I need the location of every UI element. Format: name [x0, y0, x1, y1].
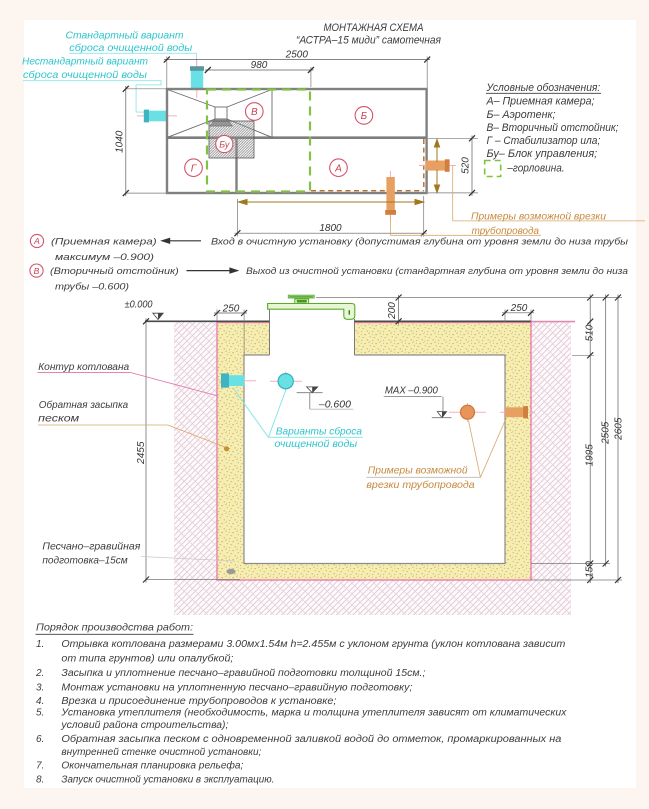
svg-text:от типа грунтов) или опалубкой: от типа грунтов) или опалубкой;: [61, 653, 233, 665]
svg-text:2455: 2455: [136, 441, 147, 465]
svg-text:трубы –0.600): трубы –0.600): [55, 282, 129, 293]
svg-text:510: 510: [585, 324, 596, 341]
svg-text:врезки трубопровода: врезки трубопровода: [366, 479, 474, 491]
svg-text:“АСТРА–15 миди” самотечная: “АСТРА–15 миди” самотечная: [296, 35, 441, 47]
svg-text:5.: 5.: [36, 708, 44, 719]
svg-text:3.: 3.: [36, 683, 44, 694]
svg-text:Бу– Блок управления;: Бу– Блок управления;: [487, 148, 598, 160]
svg-text:Б– Аэротенк;: Б– Аэротенк;: [487, 109, 556, 121]
svg-text:±0.000: ±0.000: [125, 300, 153, 311]
svg-text:–0.600: –0.600: [318, 399, 351, 410]
svg-text:Обратная засыпка песком с одно: Обратная засыпка песком с одновременной …: [61, 733, 561, 745]
svg-text:Обратная засыпка: Обратная засыпка: [39, 399, 129, 411]
svg-text:Отрывка котлована размерами 3: Отрывка котлована размерами 3.00мх1.54м …: [61, 639, 565, 650]
svg-text:Засыпка и уплотнение песчано–г: Засыпка и уплотнение песчано–гравийной п…: [61, 668, 425, 679]
svg-text:–горловина.: –горловина.: [506, 163, 564, 175]
svg-text:(Вторичный отстойник): (Вторичный отстойник): [50, 266, 179, 277]
svg-text:8.: 8.: [36, 775, 44, 786]
svg-text:В– Вторичный отстойник;: В– Вторичный отстойник;: [487, 122, 619, 134]
svg-text:7.: 7.: [36, 761, 44, 772]
svg-text:Монтаж установки на уплотненну: Монтаж установки на уплотненную песчано–…: [61, 683, 412, 694]
svg-text:сброса очищенной воды: сброса очищенной воды: [23, 69, 147, 81]
svg-text:Контур котлована: Контур котлована: [38, 361, 129, 373]
svg-text:В: В: [251, 107, 258, 118]
svg-text:Условные обозначения:: Условные обозначения:: [486, 82, 601, 94]
svg-text:MAX –0.900: MAX –0.900: [385, 385, 438, 396]
svg-text:песком: песком: [38, 413, 79, 425]
svg-text:сброса очищенной воды: сброса очищенной воды: [69, 42, 192, 54]
svg-text:Нестандартный вариант: Нестандартный вариант: [22, 56, 148, 68]
svg-text:(Приемная камера): (Приемная камера): [51, 237, 157, 248]
svg-text:250: 250: [222, 303, 240, 314]
svg-text:А: А: [33, 236, 40, 246]
svg-text:Г – Стабилизатор ила;: Г – Стабилизатор ила;: [487, 135, 601, 147]
svg-text:2.: 2.: [35, 668, 44, 679]
svg-text:1800: 1800: [319, 223, 342, 234]
svg-text:520: 520: [461, 157, 472, 174]
svg-text:2605: 2605: [614, 417, 625, 441]
svg-text:Запуск очистной установки в эк: Запуск очистной установки в эксплуатацию…: [61, 775, 274, 786]
svg-text:Б: Б: [361, 111, 368, 122]
svg-text:А– Приемная камера;: А– Приемная камера;: [486, 96, 595, 108]
svg-text:подготовка–15см: подготовка–15см: [42, 554, 127, 566]
svg-text:2500: 2500: [285, 50, 309, 61]
svg-text:1995: 1995: [585, 444, 596, 467]
svg-text:Песчано–гравийная: Песчано–гравийная: [42, 541, 140, 553]
svg-text:1.: 1.: [36, 639, 44, 650]
svg-text:200: 200: [387, 302, 398, 320]
svg-text:Врезка и присоединение трубопр: Врезка и присоединение трубопроводов к у…: [61, 695, 336, 707]
svg-text:условий района строительства);: условий района строительства);: [60, 720, 228, 731]
svg-text:Выход из очистной установки (с: Выход из очистной установки (стандартная…: [246, 266, 628, 277]
svg-text:250: 250: [510, 303, 528, 314]
svg-text:Порядок производства работ:: Порядок производства работ:: [36, 622, 193, 634]
svg-text:В: В: [34, 266, 40, 276]
svg-text:Примеры возможной: Примеры возможной: [368, 465, 468, 477]
svg-text:2505: 2505: [601, 421, 612, 445]
svg-text:очищенной воды: очищенной воды: [275, 438, 358, 450]
svg-text:Вход в очистную установку (доп: Вход в очистную установку (допустимая гл…: [211, 237, 628, 248]
svg-text:Стандартный вариант: Стандартный вариант: [66, 30, 184, 42]
svg-text:1040: 1040: [115, 130, 126, 153]
svg-text:980: 980: [251, 60, 268, 71]
svg-text:150: 150: [585, 561, 596, 578]
svg-text:4.: 4.: [36, 696, 44, 707]
svg-text:Установка утеплителя (необходи: Установка утеплителя (необходимость, мар…: [60, 707, 567, 719]
svg-text:трубопровода: трубопровода: [472, 225, 540, 237]
svg-text:внутренней стенке очистной уст: внутренней стенке очистной установки;: [61, 747, 261, 758]
svg-text:Бу: Бу: [219, 140, 230, 150]
svg-text:МОНТАЖНАЯ СХЕМА: МОНТАЖНАЯ СХЕМА: [324, 22, 424, 34]
svg-text:6.: 6.: [36, 734, 44, 745]
svg-text:Примеры возможной врезки: Примеры возможной врезки: [471, 211, 606, 223]
svg-text:Варианты сброса: Варианты сброса: [276, 425, 362, 437]
svg-text:максимум –0.900): максимум –0.900): [55, 252, 154, 263]
svg-text:Окончательная планировка релье: Окончательная планировка рельефа;: [61, 760, 243, 772]
svg-text:А: А: [334, 163, 342, 174]
